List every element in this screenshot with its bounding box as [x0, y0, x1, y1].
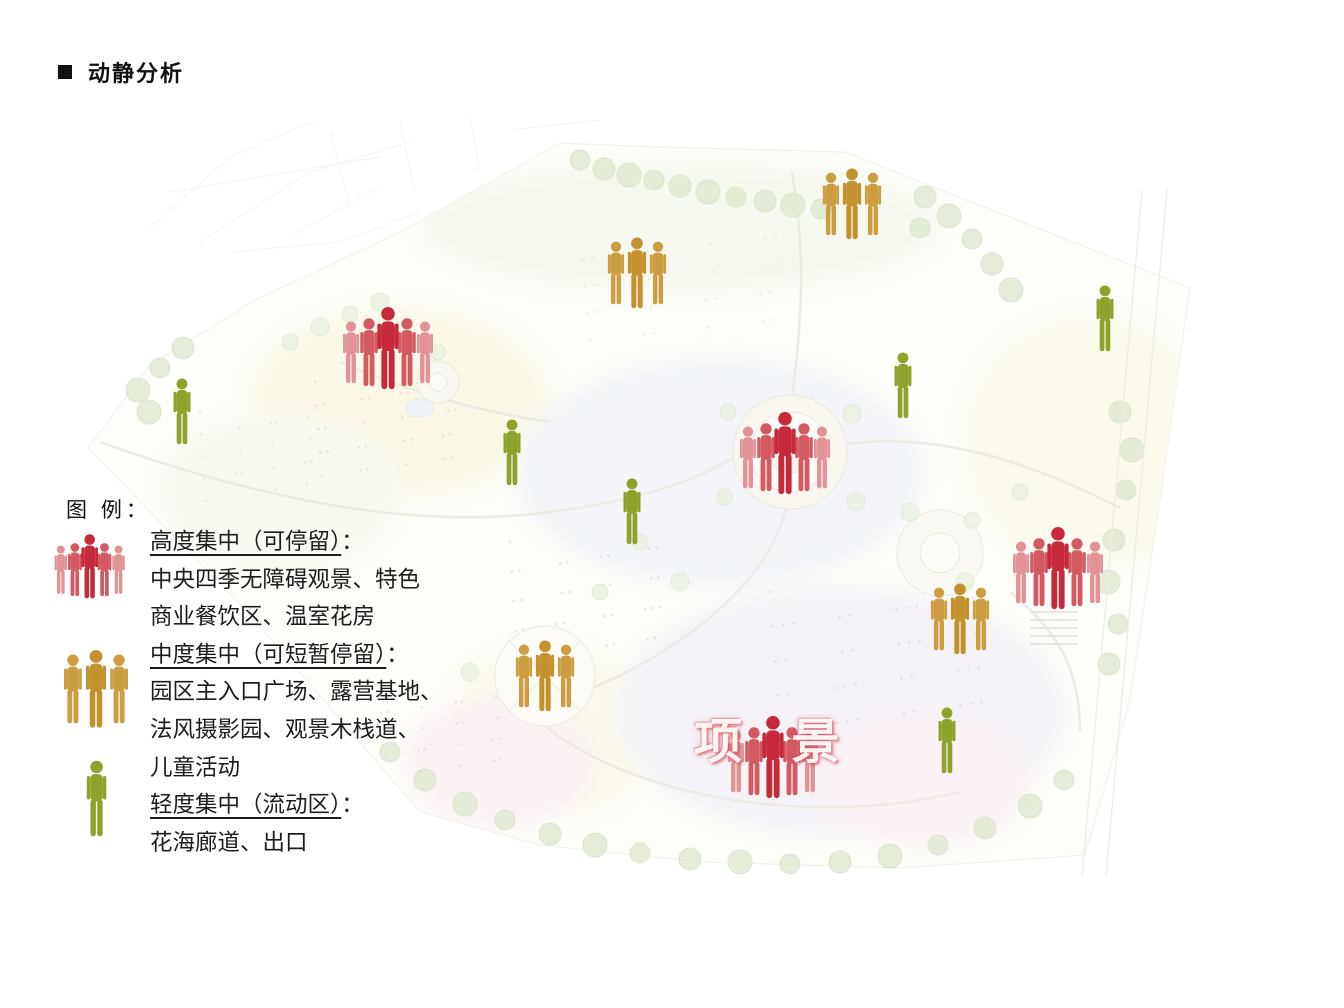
marker-red-group	[1002, 524, 1114, 610]
marker-orange-group	[505, 636, 585, 712]
legend-desc: 法风摄影园、观景木栈道、	[150, 711, 443, 749]
plan-watermark-text: 项 景	[694, 702, 857, 772]
page-title: 动静分析	[58, 56, 184, 88]
page-title-text: 动静分析	[88, 56, 184, 88]
legend-desc: 中央四季无障碍观景、特色	[150, 561, 443, 599]
legend-text-column: 高度集中（可停留）： 中央四季无障碍观景、特色 商业餐饮区、温室花房 中度集中（…	[150, 523, 443, 861]
marker-red-group	[729, 409, 841, 495]
marker-green-single	[615, 477, 649, 545]
legend-term: 中度集中（可短暂停留）：	[150, 636, 443, 674]
legend-icon-green-single	[77, 759, 116, 837]
analysis-slide: 动静分析	[0, 0, 1344, 1008]
marker-orange-group	[812, 164, 892, 240]
marker-green-single	[495, 418, 529, 486]
legend-icon-orange-group	[52, 645, 140, 729]
legend-desc: 花海廊道、出口	[150, 824, 443, 862]
legend-desc: 儿童活动	[150, 749, 443, 787]
marker-green-single	[930, 706, 964, 774]
legend-desc: 商业餐饮区、温室花房	[150, 598, 443, 636]
legend-term: 高度集中（可停留）：	[150, 523, 443, 561]
legend-icon-red-group	[46, 532, 133, 599]
marker-green-single	[886, 351, 920, 419]
marker-orange-group	[920, 579, 1000, 655]
legend-term: 轻度集中（流动区）：	[150, 786, 443, 824]
marker-green-single	[165, 377, 199, 445]
marker-red-group	[332, 304, 444, 390]
marker-green-single	[1088, 284, 1122, 352]
legend-heading: 图 例：	[66, 494, 151, 524]
legend-desc: 园区主入口广场、露营基地、	[150, 673, 443, 711]
black-square-icon	[58, 65, 72, 79]
marker-orange-group	[597, 233, 677, 309]
